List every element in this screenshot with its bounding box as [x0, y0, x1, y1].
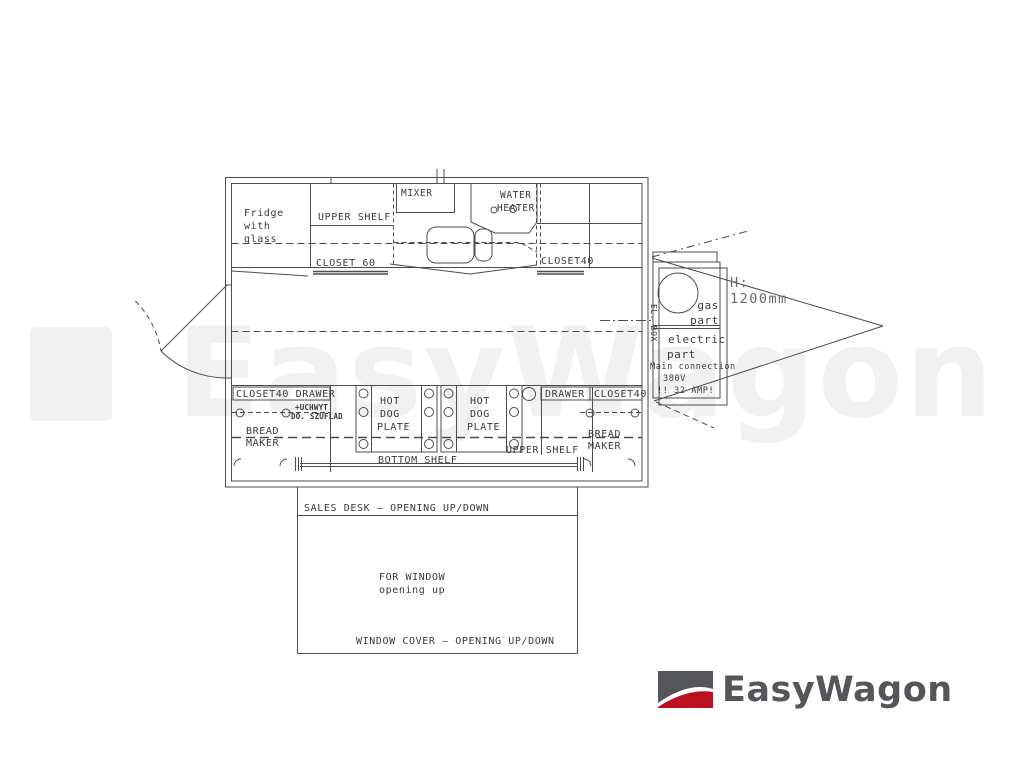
electric-part-label-line2: part [667, 348, 696, 361]
fridge-label-line2: with [244, 221, 270, 232]
mixer-label: MIXER [401, 188, 433, 199]
upper-shelf-bottom-label: UPPER SHELF [506, 445, 579, 456]
floor-plan-page: EasyWagon [0, 0, 1024, 768]
door-swing-arc [161, 351, 227, 378]
main-connection-label: Main connection [650, 362, 736, 372]
el-box-label: EL. BOX [649, 304, 658, 342]
trailer-floor-plan-drawing: Fridge with glass UPPER SHELF MIXER WATE… [0, 0, 1024, 768]
for-window-label-line1: FOR WINDOW [379, 572, 446, 583]
easywagon-logo-text: EasyWagon [722, 673, 953, 708]
uchwyt-label-line2: DO. SZUFLAD [291, 412, 343, 421]
top-counter: Fridge with glass UPPER SHELF MIXER WATE… [232, 184, 643, 277]
sink-basin-small [475, 229, 492, 261]
door-leaf [161, 285, 227, 351]
bottom-counter: CLOSET40 DRAWER +UCHWYT DO. SZUFLAD BREA… [232, 386, 647, 473]
window-cover-label: WINDOW COVER – OPENING UP/DOWN [356, 636, 555, 647]
voltage-label: 380V [663, 374, 686, 384]
closet40-bottom-label: CLOSET40 [594, 389, 647, 400]
hot-dog-left-line3: PLATE [377, 422, 410, 433]
gas-part-label-line2: part [690, 314, 719, 327]
bread-maker-left-line1: BREAD [246, 426, 279, 437]
electric-part-label-line1: electric [668, 333, 726, 346]
closet60-label: CLOSET 60 [316, 258, 376, 269]
fridge-label-line3: glass [244, 234, 277, 245]
for-window-label-line2: opening up [379, 585, 445, 596]
hot-dog-left-line1: HOT [380, 396, 400, 407]
bread-maker-left-line2: MAKER [246, 438, 279, 449]
hot-dog-right-line3: PLATE [467, 422, 500, 433]
water-heater-label-line2: HEATER [497, 203, 535, 214]
height-dimension-line2: 1200mm [730, 291, 788, 307]
service-compartment: gas part electric part Main connection 3… [649, 252, 736, 405]
fridge-label-line1: Fridge [244, 208, 284, 219]
bread-maker-right-line1: BREAD [588, 429, 621, 440]
hot-dog-right-line1: HOT [470, 396, 490, 407]
easywagon-logo-icon [658, 671, 713, 710]
closet40-top-label: CLOSET40 [541, 256, 594, 267]
easywagon-logo: EasyWagon [658, 671, 953, 710]
gas-part-label-line1: gas [697, 299, 719, 312]
drawer-label: DRAWER [545, 389, 585, 400]
floor-centerlines [232, 321, 654, 332]
entry-door [135, 285, 231, 378]
sales-desk-label: SALES DESK – OPENING UP/DOWN [304, 503, 489, 514]
bread-maker-right-line2: MAKER [588, 441, 621, 452]
hot-dog-right-line2: DOG [470, 409, 490, 420]
water-heater-label-line1: WATER [500, 190, 532, 201]
gas-bottle-icon [658, 273, 698, 313]
sales-window: SALES DESK – OPENING UP/DOWN FOR WINDOW … [298, 487, 578, 654]
upper-shelf-top-label: UPPER SHELF [318, 212, 391, 223]
height-dimension-line1: H: [730, 275, 749, 291]
bottom-shelf-label: BOTTOM SHELF [378, 455, 457, 466]
sink-basin-large [427, 227, 474, 263]
uchwyt-label-line1: +UCHWYT [295, 403, 328, 412]
hot-dog-left-line2: DOG [380, 409, 400, 420]
closet40-drawer-label: CLOSET40 DRAWER [236, 389, 336, 400]
